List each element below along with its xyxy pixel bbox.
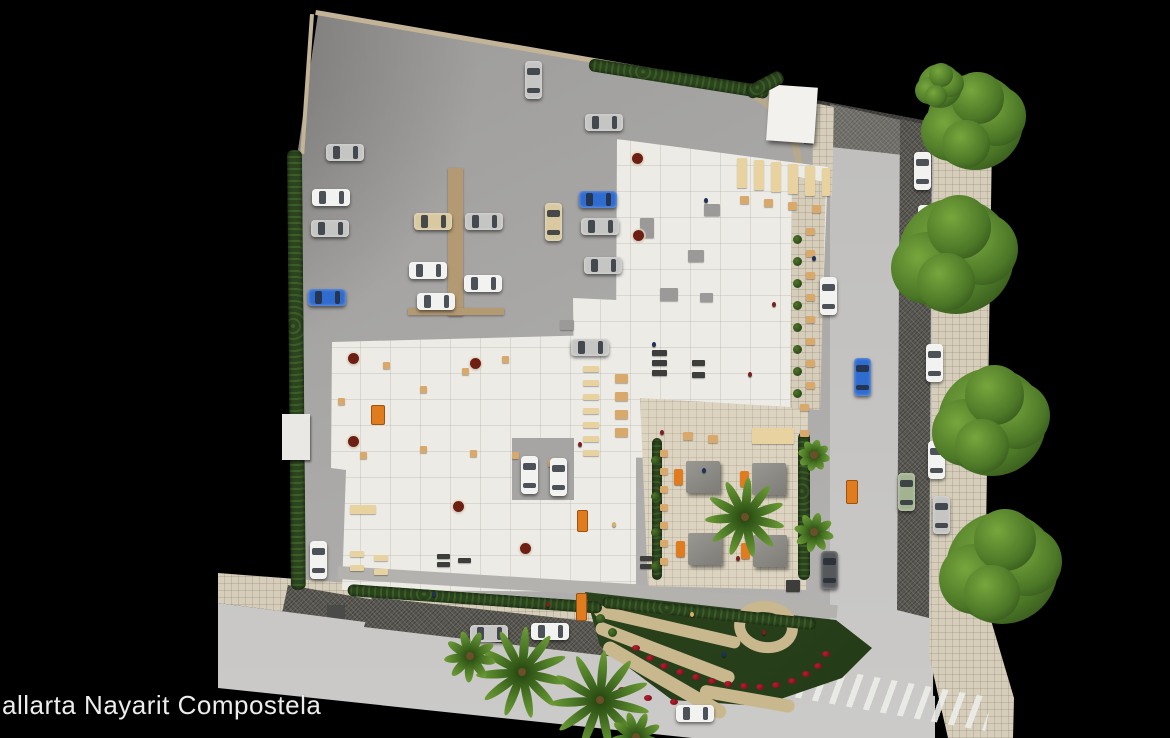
tree-canopy (917, 253, 975, 311)
bush (793, 389, 802, 398)
table (806, 338, 815, 345)
bush (793, 235, 802, 244)
flower-bed (788, 678, 796, 684)
table (788, 202, 797, 210)
palm-trunk (632, 733, 640, 738)
palm-trunk (596, 696, 604, 704)
table (708, 435, 718, 443)
car (525, 61, 542, 99)
person-dot (578, 442, 582, 447)
table (660, 540, 668, 547)
car (465, 213, 503, 230)
sun-lounger (676, 541, 685, 557)
car (308, 289, 346, 306)
car (550, 458, 567, 496)
table (512, 452, 519, 459)
table (583, 366, 599, 372)
table (806, 360, 815, 367)
table (692, 372, 705, 378)
car (676, 705, 714, 722)
table (560, 320, 574, 330)
table (374, 569, 388, 575)
tree-canopy (974, 509, 1036, 571)
table (652, 360, 667, 366)
car (417, 293, 455, 310)
bush (651, 528, 660, 537)
person-dot (736, 556, 740, 561)
bush (793, 367, 802, 376)
project-caption: allarta Nayarit Compostela (2, 690, 321, 721)
flower-bed (814, 663, 822, 669)
person-dot (432, 592, 436, 597)
table (786, 580, 800, 592)
table (660, 486, 668, 493)
flower-bed (646, 655, 654, 661)
person-dot (704, 198, 708, 203)
table (692, 360, 705, 366)
car (545, 203, 562, 241)
table (806, 272, 815, 279)
bush (608, 628, 617, 637)
tree-canopy (964, 565, 1020, 621)
table (583, 408, 599, 414)
flower-bed (756, 684, 764, 690)
bush (793, 323, 802, 332)
bush (596, 614, 605, 623)
flower-bed (644, 695, 652, 701)
car (854, 358, 871, 396)
kiosk (371, 405, 385, 425)
round-table (470, 358, 481, 369)
table (502, 356, 509, 363)
table (437, 554, 450, 559)
bush (651, 456, 660, 465)
person-dot (612, 522, 616, 527)
palm-trunk (741, 513, 749, 521)
person-dot (762, 630, 766, 635)
bush (793, 279, 802, 288)
table (800, 430, 809, 437)
table (583, 380, 599, 386)
person-dot (722, 652, 726, 657)
palm-trunk (518, 668, 526, 676)
table (688, 250, 704, 262)
palm-trunk (810, 528, 818, 536)
bush (793, 301, 802, 310)
table (805, 166, 815, 196)
table (583, 394, 599, 400)
table (350, 551, 364, 557)
flower-bed (772, 682, 780, 688)
table (737, 158, 747, 188)
round-table (633, 230, 644, 241)
car (821, 551, 838, 589)
person-dot (652, 342, 656, 347)
car (464, 275, 502, 292)
table (458, 558, 471, 563)
table (383, 362, 390, 369)
round-table (453, 501, 464, 512)
utility-pad (327, 605, 345, 619)
table (660, 468, 668, 475)
table (615, 392, 628, 401)
bush (651, 562, 660, 571)
table (806, 316, 815, 323)
round-table (632, 153, 643, 164)
tower-roof (766, 84, 818, 143)
kiosk (577, 510, 588, 532)
flower-bed (660, 663, 668, 669)
table (812, 205, 821, 213)
table (420, 386, 427, 393)
table (771, 162, 781, 192)
flower-bed (740, 683, 748, 689)
table (700, 293, 713, 302)
table (652, 370, 667, 376)
person-dot (546, 602, 550, 607)
table (462, 368, 469, 375)
table (660, 288, 678, 301)
car (926, 344, 943, 382)
person-dot (660, 430, 664, 435)
car (933, 496, 950, 534)
table (788, 164, 798, 194)
person-dot (702, 468, 706, 473)
car (521, 456, 538, 494)
car (584, 257, 622, 274)
round-table (348, 353, 359, 364)
table (660, 504, 668, 511)
table (740, 196, 749, 204)
table (652, 350, 667, 356)
kiosk (576, 593, 587, 621)
car (579, 191, 617, 208)
car (585, 114, 623, 131)
flower-bed (802, 671, 810, 677)
bush (793, 345, 802, 354)
table (640, 556, 652, 561)
table (800, 404, 809, 411)
flower-bed (822, 651, 830, 657)
table (806, 228, 815, 235)
table (360, 452, 367, 459)
cabana (686, 461, 720, 493)
car (311, 220, 349, 237)
flower-bed (692, 674, 700, 680)
table (583, 422, 599, 428)
table (806, 382, 815, 389)
flower-bed (670, 699, 678, 705)
table (615, 374, 628, 383)
person-dot (690, 612, 694, 617)
table (437, 562, 450, 567)
flower-bed (632, 645, 640, 651)
table (350, 565, 364, 571)
table (822, 168, 830, 196)
table (615, 410, 628, 419)
table (752, 428, 794, 444)
tree-canopy (942, 120, 990, 168)
table (764, 199, 773, 207)
person-dot (748, 372, 752, 377)
flower-bed (708, 678, 716, 684)
flower-bed (676, 669, 684, 675)
car (326, 144, 364, 161)
palm-trunk (466, 652, 474, 660)
palm-trunk (810, 451, 818, 459)
tree-canopy (927, 195, 991, 259)
car (914, 152, 931, 190)
table (470, 450, 477, 457)
car (898, 473, 915, 511)
flower-bed (724, 681, 732, 687)
person-dot (772, 302, 776, 307)
table (660, 522, 668, 529)
table (806, 294, 815, 301)
car (820, 277, 837, 315)
car (409, 262, 447, 279)
kiosk (846, 480, 858, 504)
site-plan-render: allarta Nayarit Compostela (0, 0, 1170, 738)
tree-canopy (965, 365, 1024, 424)
bush (651, 492, 660, 501)
car (571, 339, 609, 356)
car (581, 218, 619, 235)
table (683, 432, 693, 440)
sun-lounger (674, 469, 683, 485)
tree-canopy (925, 85, 947, 107)
bush (793, 257, 802, 266)
table (583, 450, 599, 456)
table (704, 204, 720, 216)
round-table (348, 436, 359, 447)
car (414, 213, 452, 230)
table (660, 450, 668, 457)
table (615, 428, 628, 437)
entry-structure (282, 414, 310, 460)
table (420, 446, 427, 453)
table (350, 505, 376, 514)
table (374, 555, 388, 561)
table (338, 398, 345, 405)
table (583, 436, 599, 442)
car (312, 189, 350, 206)
car (310, 541, 327, 579)
person-dot (812, 256, 816, 261)
table (660, 558, 668, 565)
round-table (520, 543, 531, 554)
table (754, 160, 764, 190)
